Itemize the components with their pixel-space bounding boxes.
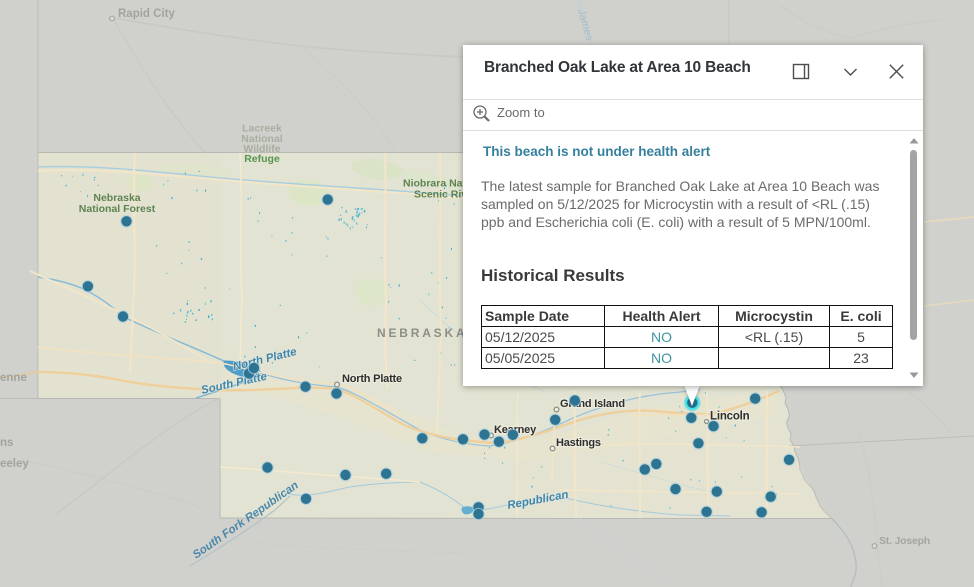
svg-text:NEBRASKA: NEBRASKA (377, 326, 467, 340)
svg-text:enne: enne (0, 372, 27, 384)
svg-text:ns: ns (0, 437, 13, 449)
svg-text:North Platte: North Platte (342, 373, 402, 385)
svg-text:Hastings: Hastings (556, 437, 601, 449)
svg-text:eeley: eeley (0, 458, 29, 470)
svg-text:Rapid City: Rapid City (118, 8, 175, 20)
svg-text:St. Joseph: St. Joseph (879, 535, 930, 547)
svg-text:National Forest: National Forest (79, 203, 156, 215)
svg-text:Refuge: Refuge (244, 153, 280, 165)
